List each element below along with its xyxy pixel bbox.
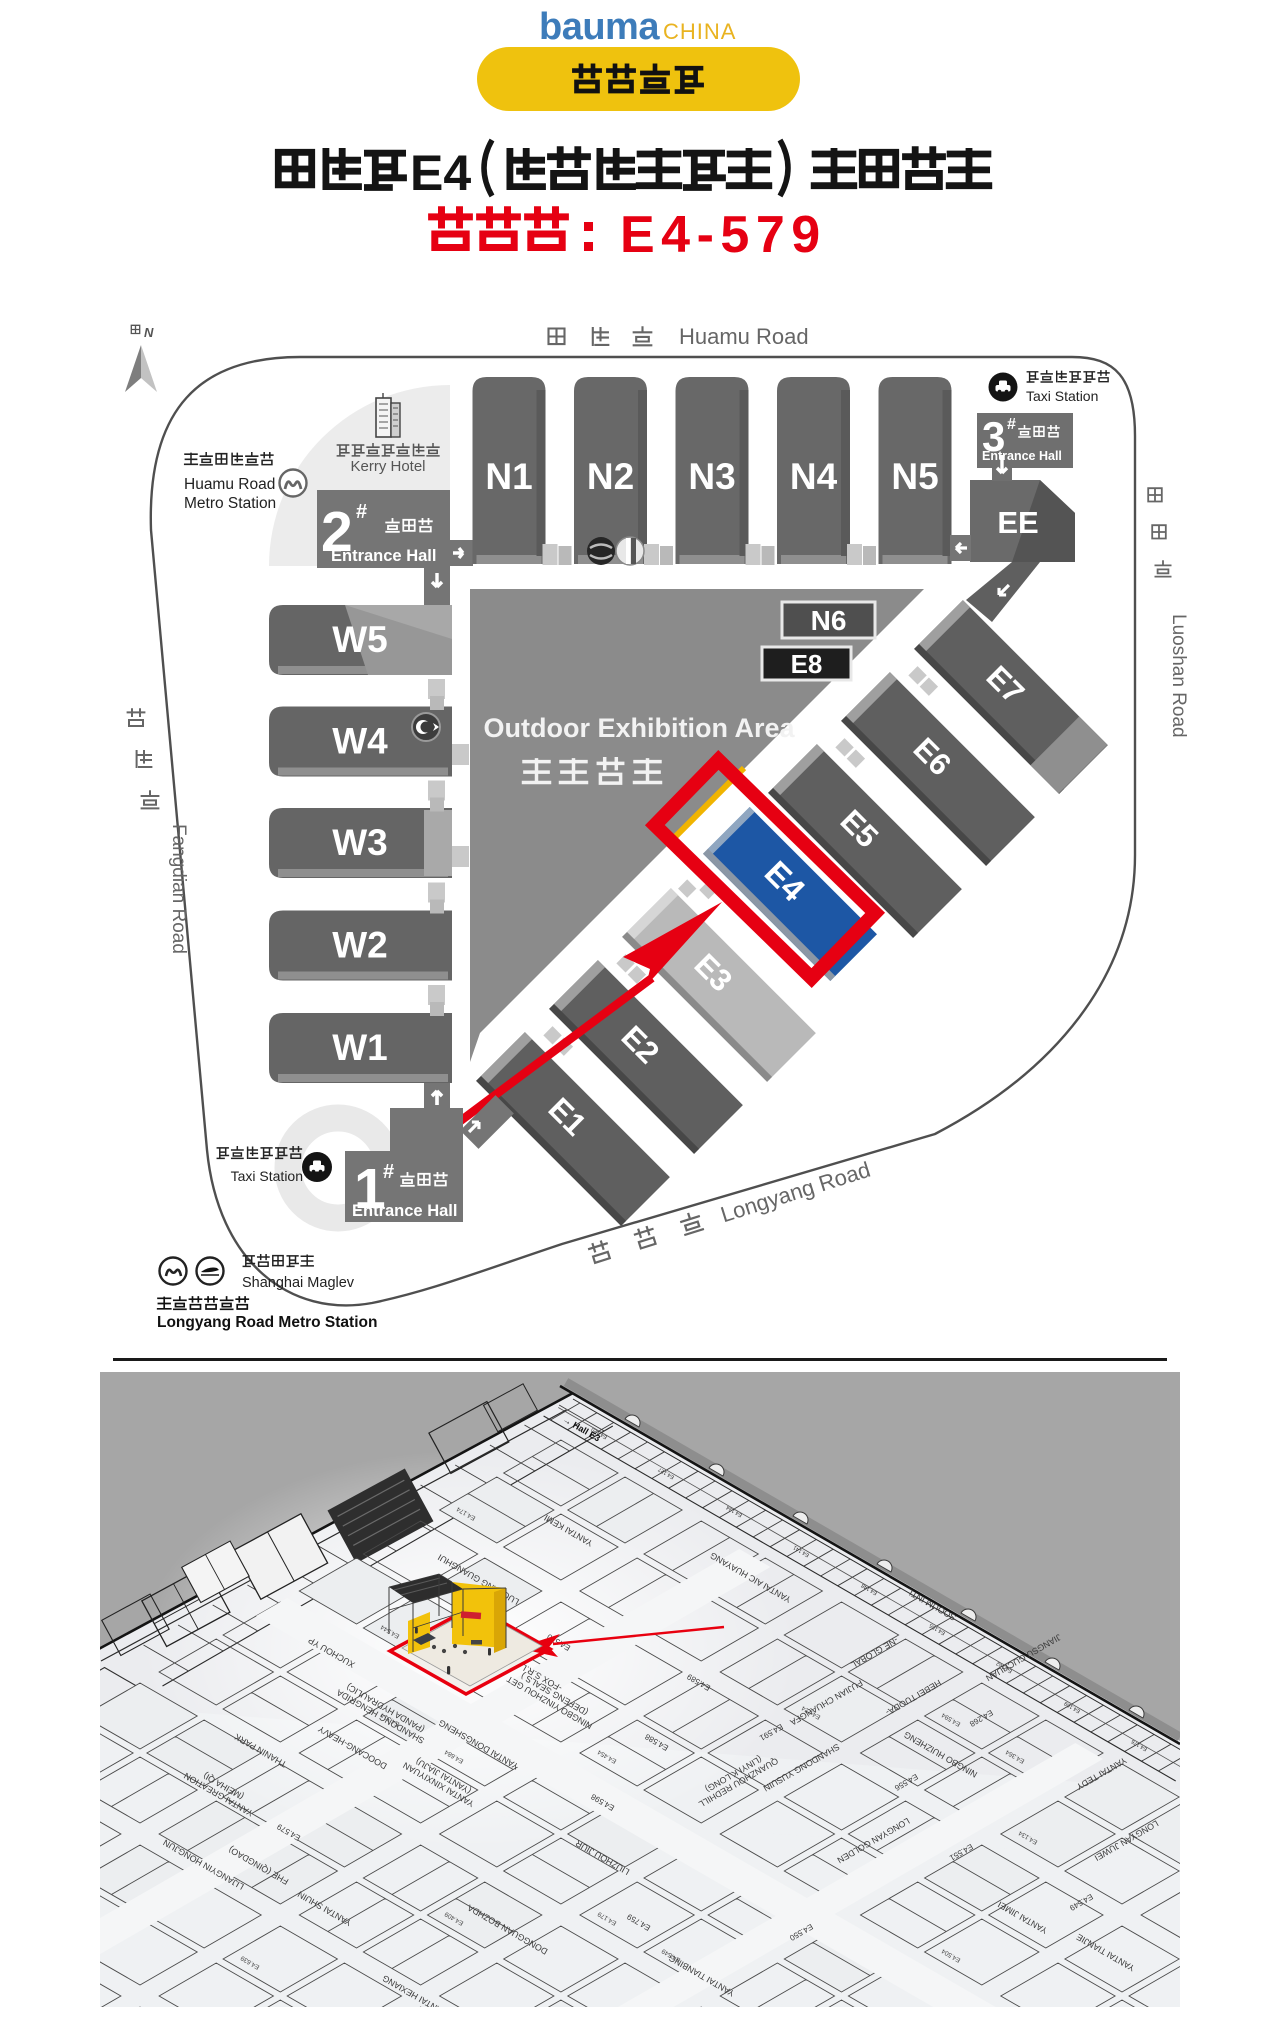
svg-text:W1: W1 <box>332 1027 388 1068</box>
svg-text:N1: N1 <box>485 456 532 497</box>
svg-text:Outdoor Exhibition Area: Outdoor Exhibition Area <box>483 713 795 743</box>
svg-text:Huamu Road: Huamu Road <box>184 476 275 493</box>
svg-text:Fangdian Road: Fangdian Road <box>168 824 189 954</box>
svg-text:E8: E8 <box>791 649 823 679</box>
svg-text:N6: N6 <box>811 605 847 636</box>
svg-text:Shanghai Maglev: Shanghai Maglev <box>242 1275 355 1291</box>
svg-text:Kerry Hotel: Kerry Hotel <box>350 458 425 475</box>
svg-text:Entrance Hall: Entrance Hall <box>331 547 436 565</box>
svg-text:N5: N5 <box>891 456 938 497</box>
svg-text:Taxi Station: Taxi Station <box>231 1168 303 1184</box>
svg-text:Longyang Road Metro Station: Longyang Road Metro Station <box>157 1314 377 1331</box>
svg-text:E4: E4 <box>410 145 471 201</box>
svg-text:W3: W3 <box>332 822 388 863</box>
svg-text:E4-579: E4-579 <box>620 206 827 264</box>
svg-text:Entrance Hall: Entrance Hall <box>982 449 1062 463</box>
svg-text:Luoshan Road: Luoshan Road <box>1168 614 1189 738</box>
svg-text:W5: W5 <box>332 619 388 660</box>
svg-text:#: # <box>383 1161 394 1183</box>
svg-text:bauma: bauma <box>539 6 660 48</box>
svg-text:#: # <box>356 501 367 523</box>
svg-text:N4: N4 <box>790 456 838 497</box>
svg-text:N2: N2 <box>587 456 634 497</box>
svg-text:Taxi Station: Taxi Station <box>1026 388 1098 404</box>
svg-text:W2: W2 <box>332 925 388 966</box>
svg-text:Entrance Hall: Entrance Hall <box>352 1202 457 1220</box>
svg-text:Huamu Road: Huamu Road <box>679 324 809 349</box>
svg-text:N3: N3 <box>688 456 735 497</box>
svg-text:#: # <box>1007 416 1016 433</box>
svg-text:EE: EE <box>997 505 1038 540</box>
svg-text:W4: W4 <box>332 721 388 762</box>
svg-text:Metro Station: Metro Station <box>184 495 276 512</box>
svg-text:CHINA: CHINA <box>663 19 736 44</box>
svg-text:N: N <box>144 325 154 340</box>
